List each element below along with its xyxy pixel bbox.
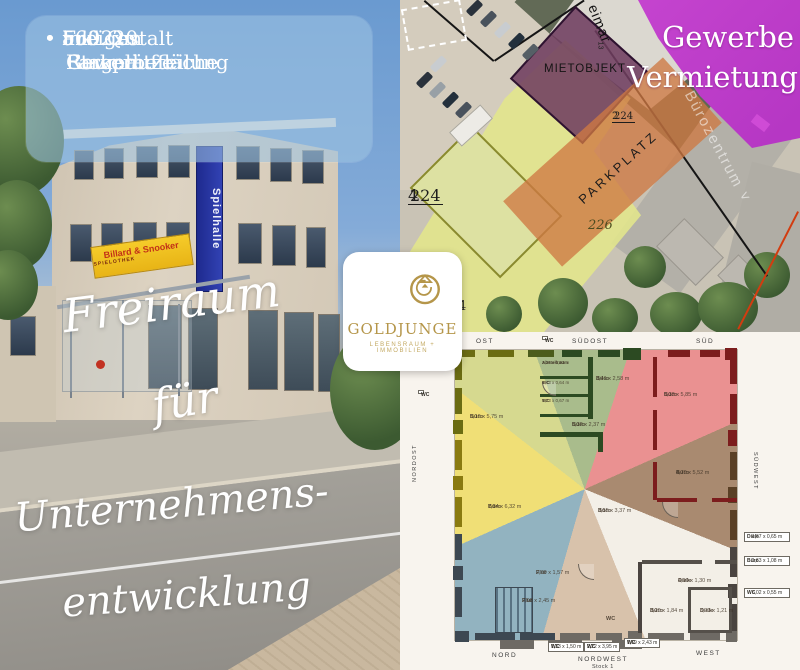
compass-ost: OST (476, 338, 494, 345)
goldjunge-emblem-icon (403, 264, 447, 308)
marketing-collage: Billard & Snooker SPIELOTHEK Spielhalle … (0, 0, 800, 670)
stairs (495, 587, 533, 633)
wc-callout-right: WC6,02 x 0,55 m (744, 588, 790, 598)
tree (538, 278, 588, 328)
tree (486, 296, 522, 332)
brand-name: GOLDJUNGE (343, 320, 462, 338)
compass-sued: SÜD (696, 338, 714, 345)
compass-nordost: NORDOST (412, 444, 418, 482)
rental-object-label: MIETOBJEKT (530, 63, 640, 75)
wc-callout-top: WC (542, 336, 548, 340)
feature-item: inkl. 20 Parkplätze (44, 26, 174, 74)
slogan-line-2: für (148, 371, 221, 432)
feature-list-card: Freigestalt Raumaufteilung auf 2x Etagen… (26, 16, 372, 162)
diele-callout-right: Diele1,67 x 0,65 m (744, 532, 790, 542)
parcel-number-226: 226 (588, 218, 613, 233)
banner-line-1: Gewerbe (658, 20, 794, 54)
compass-suedwest: SÜDWEST (752, 452, 758, 490)
tree (592, 298, 638, 332)
compass-nord: NORD (492, 652, 517, 659)
flower-pot (96, 360, 105, 369)
building-photo: Billard & Snooker SPIELOTHEK Spielhalle … (0, 0, 400, 670)
wc-callout-left: WC (418, 390, 424, 394)
level-label: Stock 1 (592, 664, 614, 670)
wc-callout-bottom-2: WC2,22 x 3,95 m (584, 642, 620, 652)
wc-callout-bottom-3: WC1,69 x 2,43 m (624, 638, 660, 648)
tree (650, 292, 702, 332)
compass-west: WEST (696, 650, 721, 657)
compass-nordwest: NORDWEST (578, 656, 628, 663)
brand-tagline: LEBENSRAUM + IMMOBILIEN (343, 342, 462, 354)
tree (624, 246, 666, 288)
wc-callout-bottom-1: WC1,33 x 1,50 m (548, 642, 584, 652)
compass-suedost: SÜDOST (572, 338, 608, 345)
goldjunge-logo-card: GOLDJUNGE LEBENSRAUM + IMMOBILIEN (343, 252, 462, 371)
floorplan: OST SÜDOST SÜD NORDOST SÜDWEST NORD NORD… (400, 332, 800, 670)
banner-line-2: Vermietung (626, 60, 798, 94)
buero-callout-right: Büro1,63 x 1,08 m (744, 556, 790, 566)
